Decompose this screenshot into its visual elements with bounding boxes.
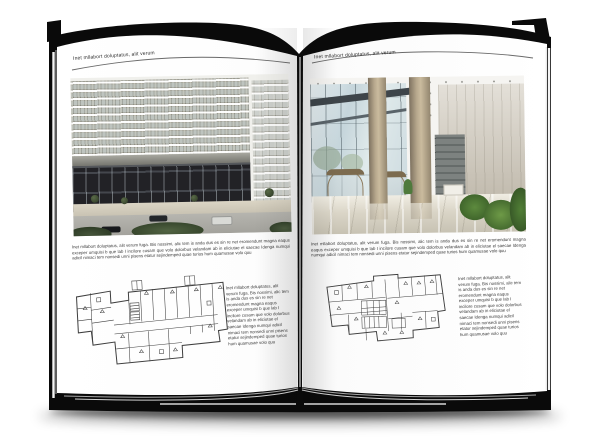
van <box>211 216 232 225</box>
planter-box <box>443 184 463 195</box>
hedge <box>70 226 111 236</box>
page-right-paragraph: Inet mllabort doluptatus, alit verum fug… <box>311 237 526 259</box>
car <box>149 215 167 221</box>
lobby-column <box>368 77 388 203</box>
page-right-header: Inet mllabort doluptatus, alit verum <box>314 50 396 61</box>
page-right: Inet mllabort doluptatus, alit verum In <box>303 28 548 400</box>
column-reflection <box>411 203 432 219</box>
floor-plan-drawing-right <box>319 270 454 352</box>
building-exterior-photo <box>70 74 291 237</box>
street-tree <box>121 197 128 204</box>
plant <box>403 179 412 194</box>
floor-plan-drawing-left <box>66 272 241 376</box>
page-left: Inet mllabort doluptatus, alit verum Ine… <box>57 28 297 400</box>
page-left-paragraph: Inet mllabort doluptatus, alit verum fug… <box>72 238 290 262</box>
lobby-interior-photo <box>310 76 526 235</box>
hedge <box>269 222 291 236</box>
page-left-caption: Inet mllabort doluptatus, alit verum fug… <box>226 283 293 347</box>
page-right-caption: Inet mllabort doluptatus, alit verum fug… <box>458 274 524 338</box>
book-mockup: Inet mllabort doluptatus, alit verum Ine… <box>0 0 600 446</box>
office-tower-facade <box>70 78 250 157</box>
neighbor-building <box>251 80 291 207</box>
page-left-header: Inet mllabort doluptatus, alit verum <box>73 50 155 62</box>
column-reflection <box>370 203 388 219</box>
